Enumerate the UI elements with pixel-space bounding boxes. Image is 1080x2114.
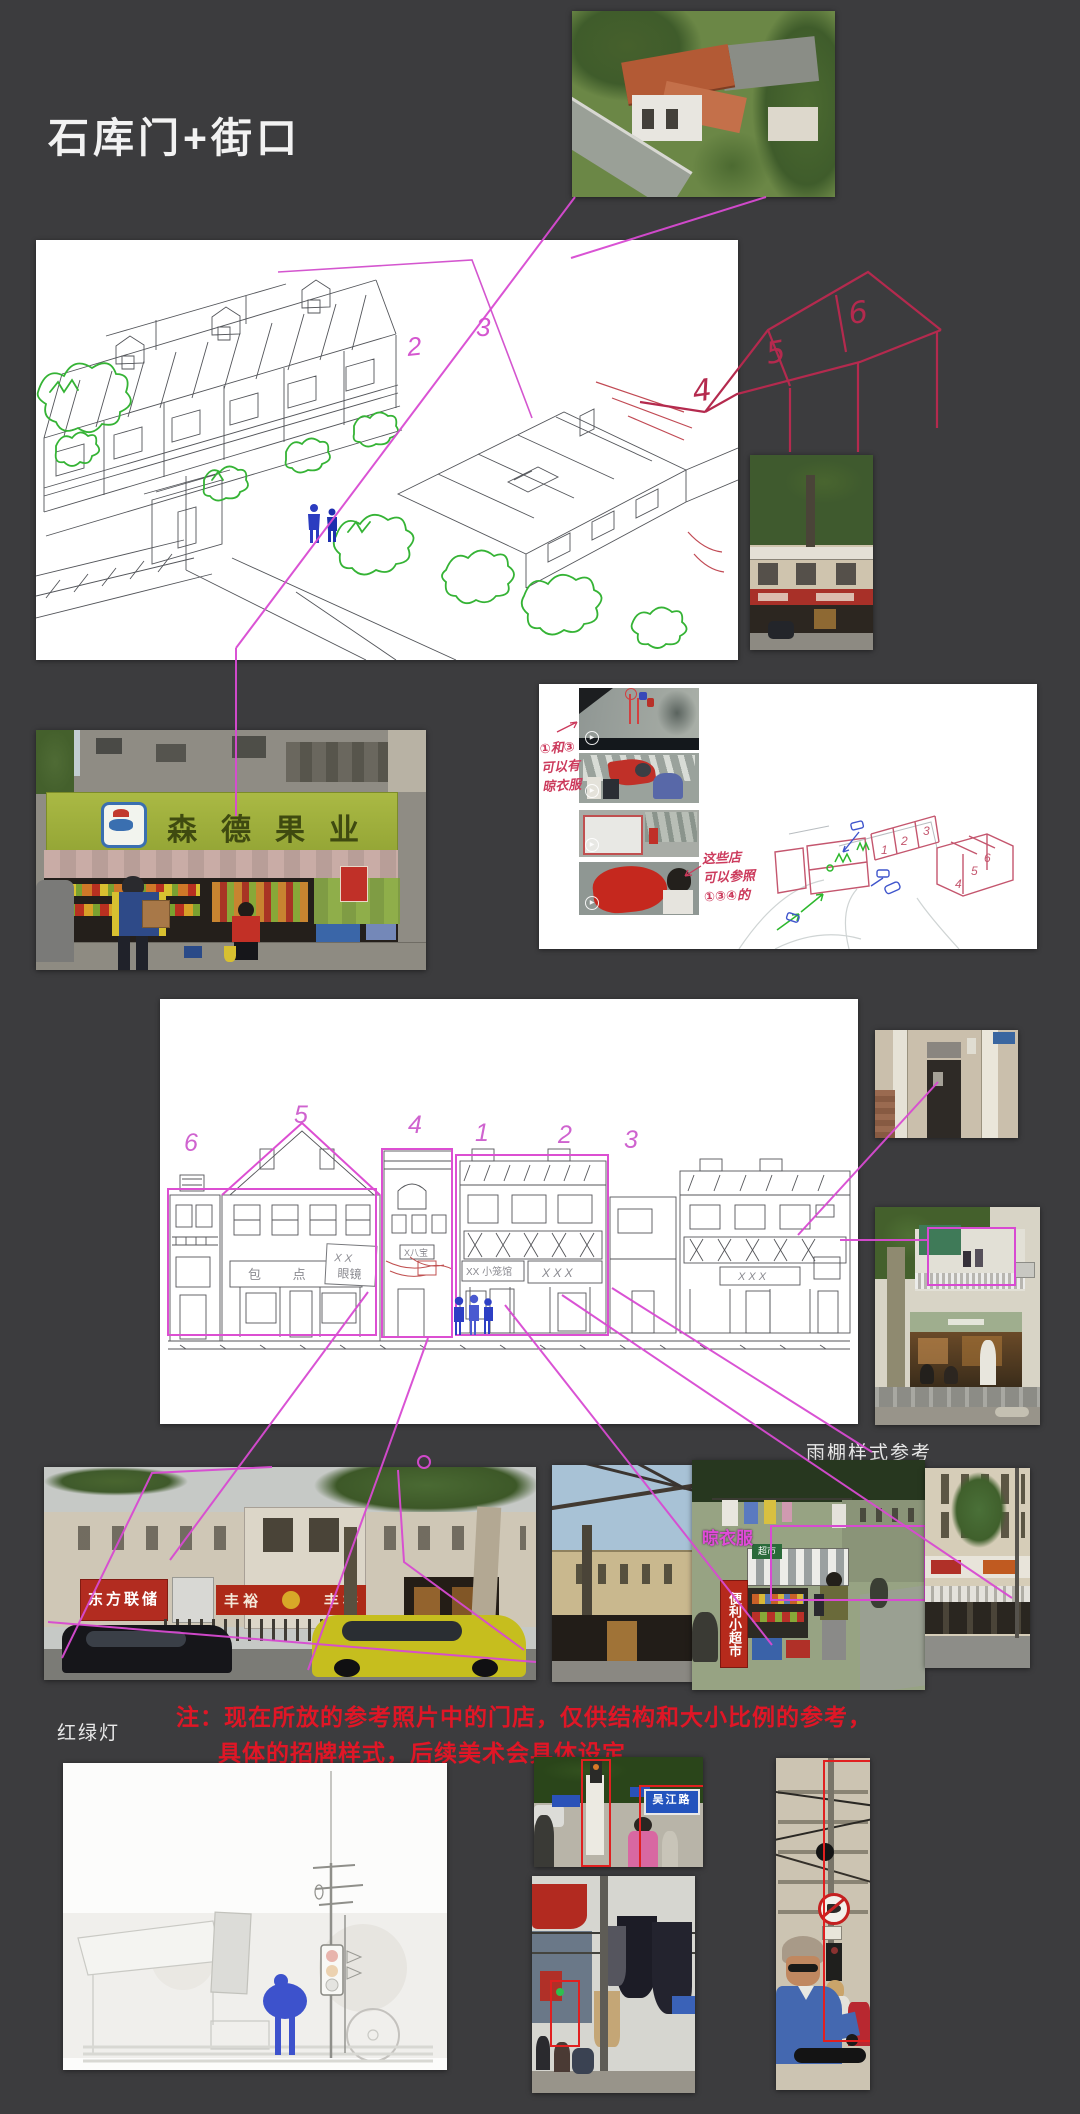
- dark-doorway: [927, 1060, 961, 1138]
- red-awning-closeup: [591, 862, 669, 915]
- green-tree-marks: [777, 843, 869, 930]
- glasses-sign-top: X X: [333, 1252, 353, 1265]
- tree-mass: [692, 131, 772, 197]
- window-row: [850, 1508, 916, 1522]
- stool: [184, 946, 202, 958]
- pencil-facades: [168, 1123, 850, 1349]
- photo-cafe: [875, 1207, 1040, 1425]
- signal-annotation-box: [581, 1759, 611, 1867]
- utility-pole: [600, 1876, 608, 2093]
- camera-plan-numbers: 1 2 3 4 5 6: [881, 824, 991, 891]
- pedestrian: [534, 1815, 554, 1867]
- dongfang-sign-text: 东方联储: [88, 1591, 160, 1608]
- black-car: [62, 1625, 232, 1673]
- glasses-signboard: X X 眼镜: [325, 1244, 377, 1287]
- plan-number-3: 3: [923, 824, 930, 838]
- cardboard-box: [142, 900, 170, 928]
- block-number-5: 5: [763, 334, 788, 372]
- storyboard-note-left: ①和③ 可以有 晾衣服: [539, 737, 582, 797]
- green-signal-lamp: [556, 1988, 564, 1996]
- shop-logo: [101, 802, 147, 848]
- video-thumb-2: ▶: [579, 753, 699, 803]
- red-circle-mark: [625, 688, 637, 700]
- goods-row: [752, 1612, 804, 1622]
- elev-number-1: 1: [475, 1119, 489, 1147]
- elev-number-4: 4: [408, 1111, 422, 1139]
- blue-crates: [752, 1638, 782, 1660]
- lit-window: [918, 1338, 948, 1364]
- plan-number-1: 1: [881, 843, 888, 857]
- lit-window: [814, 609, 836, 629]
- wheel: [334, 1659, 360, 1677]
- handlebars: [794, 2048, 866, 2063]
- pencil-lines: [36, 280, 738, 660]
- transom: [927, 1042, 961, 1058]
- collar: [798, 1986, 814, 2000]
- hanging-garment: [744, 1502, 758, 1524]
- cafe-storefront: [910, 1332, 1022, 1387]
- scale-figures: [454, 1295, 493, 1335]
- window: [263, 1518, 293, 1552]
- hanging-garment: [782, 1502, 792, 1522]
- faint-buildings: [789, 822, 937, 848]
- foliage: [36, 730, 74, 794]
- photo-aerial: [572, 11, 835, 197]
- leg: [118, 936, 130, 970]
- brick-wall: [875, 1090, 895, 1138]
- tree-scribbles: [38, 363, 687, 648]
- branch: [552, 1483, 692, 1512]
- watermark-pill: [995, 1407, 1029, 1417]
- road: [532, 2071, 695, 2093]
- sign-text-blob: [758, 593, 788, 601]
- traffic-light-caption: 红绿灯: [57, 1718, 120, 1745]
- photo-street-shopfront: [750, 455, 873, 650]
- photo-wujiang-road: 吴江路: [534, 1757, 703, 1867]
- building: [552, 1550, 692, 1620]
- red-wire-scribbles: [386, 1257, 452, 1276]
- page-title: 石库门+街口: [48, 104, 301, 164]
- photo-cyclist: [776, 1758, 870, 2090]
- convenience-store-sign: 便利小超市: [720, 1580, 748, 1668]
- wheel: [472, 1659, 498, 1677]
- play-icon: ▶: [585, 838, 599, 852]
- storyboard-panel: ▶ ▶ ▶ ▶ ①和③ 可以有 晾衣服 这些店: [539, 684, 1037, 949]
- plan-number-2: 2: [900, 834, 908, 848]
- car-windows: [86, 1631, 186, 1647]
- shopper: [224, 902, 272, 970]
- sign-noodle: XX 小笼馆: [466, 1265, 512, 1278]
- red-top: [232, 916, 260, 942]
- yellow-bag: [224, 946, 236, 962]
- elevation-sketch-panel: 包 点 铺 XX 小笼馆 X X X X八宝 X X X X X 眼镜 6 5 …: [160, 999, 858, 1424]
- sidewalk: [552, 1661, 692, 1682]
- elev-number-2: 2: [557, 1121, 572, 1149]
- red-awning: [532, 1884, 587, 1929]
- blue-shop-sign: [552, 1795, 580, 1807]
- ac-unit: [156, 744, 186, 762]
- dongfang-sign: 东方联储: [80, 1579, 168, 1621]
- white-wall: [768, 107, 818, 141]
- road-lines: [739, 880, 959, 949]
- figure-blob: [639, 692, 647, 700]
- block-number-6: 6: [846, 295, 870, 332]
- production-note-line1: 注：现在所放的参考照片中的门店，仅供结构和大小比例的参考，: [176, 1698, 872, 1732]
- blue-box: [993, 1032, 1015, 1044]
- window: [758, 563, 778, 585]
- video-thumb-1: ▶: [579, 688, 699, 750]
- dark-corner: [579, 688, 613, 714]
- small-plate: [967, 1038, 976, 1054]
- delivery-person: [106, 876, 164, 970]
- window: [642, 109, 654, 129]
- white-shirt: [663, 890, 693, 914]
- plan-number-5: 5: [971, 864, 978, 878]
- red-sign: [931, 1560, 961, 1574]
- reference-board: 石库门+街口: [0, 0, 1080, 2114]
- scooter: [572, 2048, 594, 2074]
- door-notice: [933, 1072, 943, 1086]
- ac-unit: [232, 736, 266, 758]
- shop-sign-strip: [750, 589, 873, 605]
- photo-street-row-d: [925, 1468, 1030, 1668]
- fruit-shop-sign-text: 森德果业: [167, 805, 383, 849]
- sign-xxx: X X X: [541, 1266, 574, 1280]
- plan-number-4: 4: [955, 877, 962, 891]
- tree-canopy: [951, 1472, 1007, 1548]
- elev-number-6: 6: [184, 1129, 198, 1157]
- cafe-sign: [910, 1312, 1022, 1332]
- pedestrian-figures: [308, 504, 337, 543]
- blue-sign: [672, 1996, 695, 2014]
- sign-annotation-box: [639, 1785, 703, 1867]
- orange-sign: [983, 1560, 1019, 1574]
- window-row: [562, 1564, 682, 1584]
- branch: [578, 1465, 685, 1490]
- utility-pole: [1015, 1468, 1019, 1638]
- window: [666, 109, 678, 129]
- pants: [822, 1620, 846, 1660]
- lit-doorway: [607, 1621, 637, 1661]
- scooter: [768, 621, 794, 639]
- white-wall: [632, 95, 702, 141]
- white-column: [893, 1030, 908, 1138]
- fengyu-logo: [282, 1591, 300, 1609]
- traffic-light-sketch: [63, 1763, 447, 2070]
- photo-laundry-street: [532, 1876, 695, 2093]
- note-line: ①③④的: [704, 885, 757, 907]
- awning-highlight-box: [927, 1227, 1016, 1286]
- taxi-windows: [342, 1621, 462, 1641]
- balcony-rail: [750, 547, 873, 560]
- pole-annotation-box: [823, 1760, 870, 2042]
- red-block-outlines: [775, 816, 1013, 896]
- white-column: [981, 1030, 998, 1138]
- building-corner: [388, 730, 426, 792]
- blue-crates: [316, 924, 360, 942]
- standing-person: [980, 1340, 996, 1385]
- dark-shops: [552, 1615, 692, 1661]
- sign-small: X八宝: [404, 1247, 428, 1258]
- window: [309, 1518, 339, 1552]
- photo-doorway: [875, 1030, 1018, 1138]
- person-blob: [635, 763, 651, 777]
- glasses-sign-bottom: 眼镜: [337, 1265, 362, 1281]
- photo-street-row-a: 东方联储 丰 裕 丰 裕: [44, 1467, 536, 1680]
- facade-elevation-sketch: 包 点 铺 XX 小笼馆 X X X X八宝 X X X X X 眼镜 6 5 …: [160, 999, 858, 1424]
- plan-number-6: 6: [984, 851, 991, 865]
- street-fence: [875, 1387, 1040, 1407]
- note-line: 晾衣服: [542, 775, 582, 797]
- elev-number-3: 3: [624, 1126, 638, 1154]
- convenience-sign-text: 便利小超市: [727, 1592, 742, 1657]
- white-sign: [172, 1577, 214, 1623]
- blue-crates: [366, 924, 396, 940]
- elev-number-5: 5: [294, 1101, 308, 1129]
- skirt: [234, 942, 258, 960]
- boat-shape: [653, 773, 683, 799]
- logo-mark: [113, 809, 129, 817]
- sign-text-blob: [948, 1319, 984, 1325]
- hanging-garment: [764, 1500, 776, 1524]
- ac-unit: [1015, 1262, 1035, 1278]
- sketch-number-3: 3: [476, 312, 491, 342]
- sketch-number-2: 2: [404, 331, 423, 363]
- red-mark: [637, 698, 639, 724]
- figure-blob: [647, 698, 654, 707]
- price-sign: [340, 866, 368, 902]
- leg: [136, 936, 148, 970]
- play-icon: ▶: [585, 731, 599, 745]
- red-crates: [786, 1640, 810, 1658]
- sign-text-blob: [816, 593, 854, 601]
- shop-interior: [44, 878, 398, 944]
- street-corner-sketch: 2 3: [36, 240, 738, 660]
- window: [796, 563, 816, 585]
- lit-window: [414, 1587, 440, 1617]
- seated-person: [692, 1612, 718, 1662]
- pedestrian: [36, 880, 74, 962]
- traffic-light-sketch-panel: [63, 1763, 447, 2070]
- fengyu-text-left: 丰 裕: [224, 1590, 258, 1611]
- play-icon: ▶: [585, 784, 599, 798]
- drying-clothes-label: 晾衣服: [702, 1524, 753, 1549]
- head: [667, 868, 691, 892]
- sketch-street-corner-panel: 2 3: [36, 240, 738, 660]
- camera-icons: [786, 821, 901, 923]
- rooftop-clutter: [286, 742, 396, 782]
- red-pencil-marks: [596, 382, 724, 572]
- photo-fruit-shop: 森德果业: [36, 730, 426, 970]
- window: [836, 563, 856, 585]
- sunglasses: [788, 1964, 818, 1972]
- play-icon: ▶: [585, 896, 599, 910]
- ac-unit: [96, 738, 122, 754]
- tree-trunk: [806, 475, 815, 555]
- tree-blob: [657, 690, 697, 736]
- seated-person: [944, 1366, 958, 1384]
- sign-xxx2: X X X: [737, 1271, 767, 1283]
- photo-street-row-c: 超市 便利小超市 晾衣服: [692, 1460, 925, 1690]
- seated-person: [920, 1364, 934, 1384]
- photo-street-row-b: [552, 1465, 692, 1682]
- video-thumb-3: ▶: [579, 810, 699, 857]
- signal-annotation-box: [550, 1980, 580, 2047]
- road: [925, 1636, 1030, 1668]
- fruit-shop-signboard: 森德果业: [46, 792, 398, 852]
- video-thumb-4: ▶: [579, 862, 699, 915]
- yellow-taxi: [312, 1615, 526, 1677]
- hanging-garment: [722, 1500, 738, 1526]
- tree-trunk: [344, 1527, 357, 1627]
- red-jacket-person: [649, 828, 658, 844]
- person-blob: [603, 779, 619, 799]
- laundry-highlight-box: [770, 1525, 925, 1601]
- logo-mark: [109, 819, 133, 831]
- pedestrian: [536, 2036, 550, 2070]
- dark-awning-top: [692, 1460, 925, 1502]
- storyboard-note-right: 这些店 可以参照 ①③④的: [702, 847, 757, 907]
